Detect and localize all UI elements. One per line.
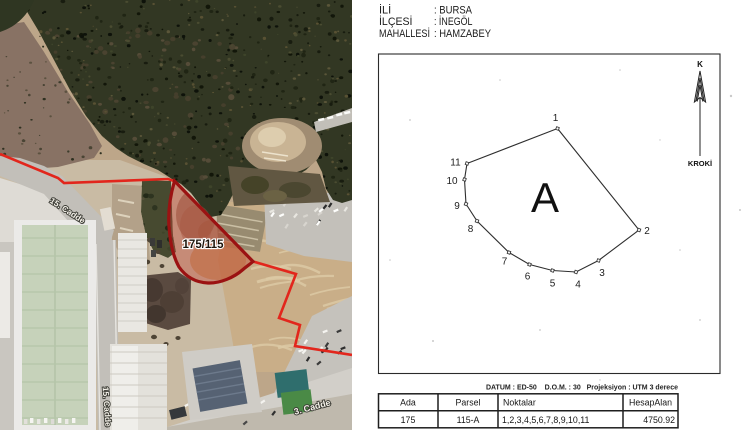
svg-text:K: K (697, 60, 703, 69)
svg-text:: BURSA: : BURSA (434, 5, 473, 17)
svg-text:İLİ: İLİ (379, 4, 391, 17)
svg-text:6: 6 (525, 272, 531, 283)
svg-text:Noktalar: Noktalar (503, 398, 536, 408)
svg-text:KROKİ: KROKİ (688, 159, 712, 168)
svg-text:Ada: Ada (400, 398, 416, 408)
svg-text:10: 10 (446, 176, 458, 187)
svg-text:1,2,3,4,5,6,7,8,9,10,11: 1,2,3,4,5,6,7,8,9,10,11 (502, 415, 589, 425)
svg-text:5: 5 (550, 279, 556, 290)
svg-text:A: A (531, 174, 559, 221)
svg-text:9: 9 (454, 201, 460, 212)
svg-text:İLÇESİ: İLÇESİ (379, 15, 413, 28)
svg-text:4: 4 (575, 280, 581, 291)
svg-text:HesapAlan: HesapAlan (629, 398, 672, 408)
svg-text:1: 1 (553, 113, 559, 124)
svg-text:Parsel: Parsel (456, 398, 481, 408)
svg-text:175: 175 (401, 415, 416, 425)
svg-text:115-A: 115-A (457, 415, 480, 425)
svg-text:3: 3 (599, 268, 605, 279)
svg-text:4750.92: 4750.92 (643, 415, 675, 425)
svg-text:7: 7 (502, 257, 508, 268)
svg-text:MAHALLESİ: MAHALLESİ (379, 27, 430, 40)
svg-text:: İNEGÖL: : İNEGÖL (434, 15, 473, 28)
svg-text:2: 2 (644, 226, 650, 237)
svg-text:DATUM : ED-50 D.O.M. : 30: DATUM : ED-50 D.O.M. : 30 Projeksiyon : … (486, 385, 678, 392)
svg-text:8: 8 (468, 224, 474, 235)
svg-text:175/115: 175/115 (183, 239, 225, 251)
svg-text:: HAMZABEY: : HAMZABEY (434, 28, 492, 40)
svg-text:11: 11 (450, 158, 461, 169)
